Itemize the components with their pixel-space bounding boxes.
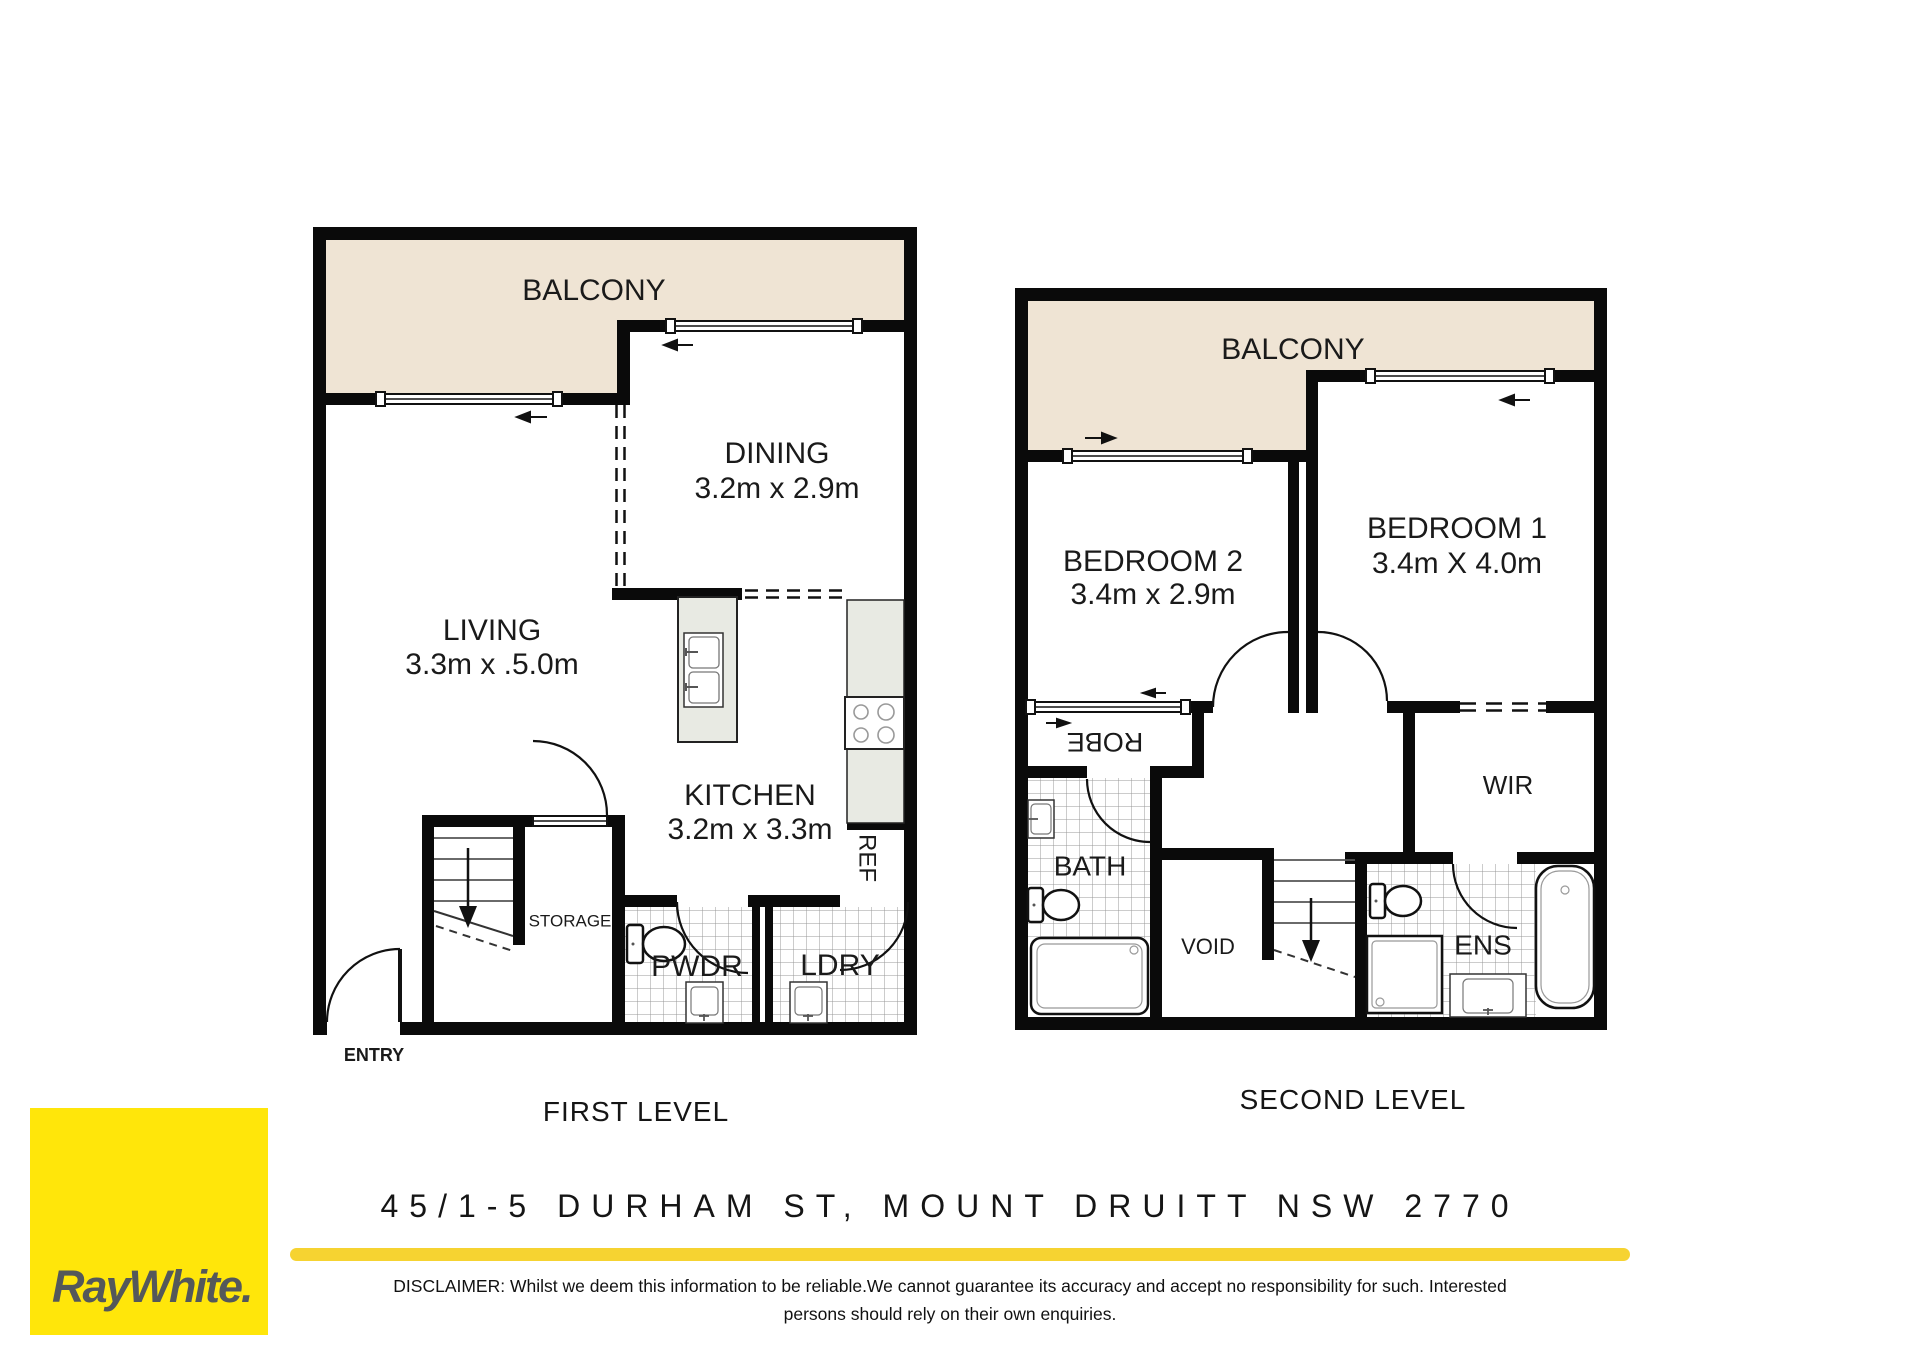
storage-door-arc <box>533 741 607 815</box>
bedroom1-dims: 3.4m X 4.0m <box>1372 547 1542 580</box>
kitchen-dims: 3.2m x 3.3m <box>667 813 832 846</box>
dining-label: DINING <box>725 437 830 470</box>
bedroom2-door-arc <box>1213 632 1288 707</box>
entry-door-arc <box>327 949 400 1022</box>
first-balcony-area <box>326 240 904 393</box>
wir-dashed-opening <box>1460 704 1546 711</box>
bedroom2-window <box>1063 449 1252 463</box>
stairs-down-arrow <box>1302 940 1320 962</box>
second-balcony-label: BALCONY <box>1221 333 1364 366</box>
disclaimer-line-1: DISCLAIMER: Whilst we deem this informat… <box>230 1272 1670 1300</box>
floorplan-page: BALCONY DINING 3.2m x 2.9m LIVING 3.3m x… <box>0 0 1920 1357</box>
dining-window <box>666 319 862 333</box>
floorplan-canvas: BALCONY DINING 3.2m x 2.9m LIVING 3.3m x… <box>0 0 1920 1357</box>
living-dims: 3.3m x .5.0m <box>405 648 578 681</box>
ens-bathtub <box>1536 866 1594 1008</box>
ldry-fixtures <box>790 982 827 1023</box>
storage-label: STORAGE <box>529 911 612 930</box>
wir-label: WIR <box>1483 770 1534 800</box>
pwdr-label: PWDR <box>651 950 743 983</box>
bedroom1-window <box>1366 369 1554 383</box>
ens-label: ENS <box>1454 929 1512 960</box>
living-label: LIVING <box>443 614 541 647</box>
dining-dims: 3.2m x 2.9m <box>694 472 859 505</box>
first-level-stairs <box>434 838 513 951</box>
disclaimer-line-2: persons should rely on their own enquiri… <box>230 1300 1670 1328</box>
robe-label: ROBE <box>1067 727 1144 757</box>
first-level-caption: FIRST LEVEL <box>543 1096 729 1128</box>
bath-label: BATH <box>1054 850 1127 881</box>
kitchen-counter <box>845 600 904 823</box>
pwdr-toilet <box>627 925 643 963</box>
bedroom1-label: BEDROOM 1 <box>1367 512 1547 545</box>
robe-slider <box>1026 700 1190 714</box>
kitchen-island <box>678 597 737 742</box>
ldry-label: LDRY <box>800 949 879 982</box>
property-address: 45/1-5 DURHAM ST, MOUNT DRUITT NSW 2770 <box>380 1188 1519 1225</box>
ref-label: REF <box>854 834 881 882</box>
cooktop <box>845 697 904 749</box>
bedroom2-dims: 3.4m x 2.9m <box>1070 578 1235 611</box>
bedroom2-label: BEDROOM 2 <box>1063 545 1243 578</box>
second-level-plan: BALCONY BEDROOM 2 3.4m x 2.9m BEDROOM 1 … <box>1015 288 1607 1030</box>
storage-slider <box>533 816 607 826</box>
yellow-divider-bar <box>290 1248 1630 1261</box>
void-label: VOID <box>1181 934 1235 959</box>
disclaimer: DISCLAIMER: Whilst we deem this informat… <box>230 1272 1670 1328</box>
bedroom1-door-arc <box>1318 632 1387 701</box>
raywhite-logo-text: RayWhite. <box>52 1261 252 1313</box>
first-balcony-label: BALCONY <box>522 274 665 307</box>
second-level-caption: SECOND LEVEL <box>1240 1084 1467 1116</box>
first-level-plan: BALCONY DINING 3.2m x 2.9m LIVING 3.3m x… <box>313 227 917 1065</box>
entry-label: ENTRY <box>344 1045 404 1065</box>
balcony-window <box>376 392 562 406</box>
ens-shower <box>1367 936 1442 1013</box>
second-level-stairs <box>1274 860 1355 977</box>
kitchen-label: KITCHEN <box>684 779 816 812</box>
